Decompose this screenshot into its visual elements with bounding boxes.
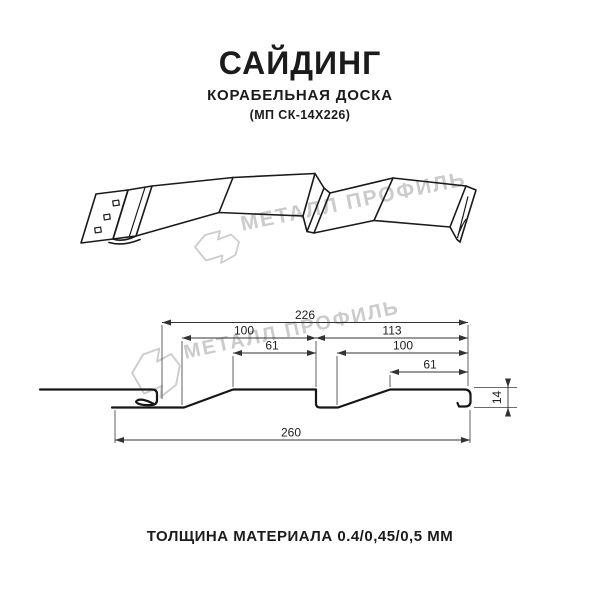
siding-cross-section-drawing: 226 100 113 61 100 61 260 14: [0, 300, 600, 460]
nail-hole: [104, 214, 111, 220]
dim-label-61-left: 61: [265, 339, 279, 353]
product-code: (МП СК-14Х226): [0, 108, 600, 122]
dim-label-61-right: 61: [423, 358, 437, 372]
dim-label-14: 14: [490, 391, 504, 405]
dim-label-100-right: 100: [393, 339, 413, 353]
adjacent-panel-edge: [40, 390, 157, 401]
thickness-note: ТОЛЩИНА МАТЕРИАЛА 0.4/0,45/0,5 ММ: [0, 528, 600, 545]
product-subtitle: КОРАБЕЛЬНАЯ ДОСКА: [0, 87, 600, 104]
nail-hole: [95, 227, 102, 233]
siding-3d-drawing: [0, 150, 600, 290]
lock-hook: [136, 400, 157, 405]
dim-label-113: 113: [382, 324, 401, 338]
panel-front-edge: [136, 213, 460, 243]
dim-label-226: 226: [295, 308, 315, 322]
dim-label-260: 260: [281, 426, 301, 440]
panel-profile: [112, 390, 471, 408]
dim-label-100-left: 100: [234, 324, 254, 338]
lock-ridge: [113, 186, 152, 239]
nail-hole: [113, 200, 120, 206]
header: САЙДИНГ КОРАБЕЛЬНАЯ ДОСКА (МП СК-14Х226): [0, 46, 600, 122]
page-title: САЙДИНГ: [0, 46, 600, 80]
